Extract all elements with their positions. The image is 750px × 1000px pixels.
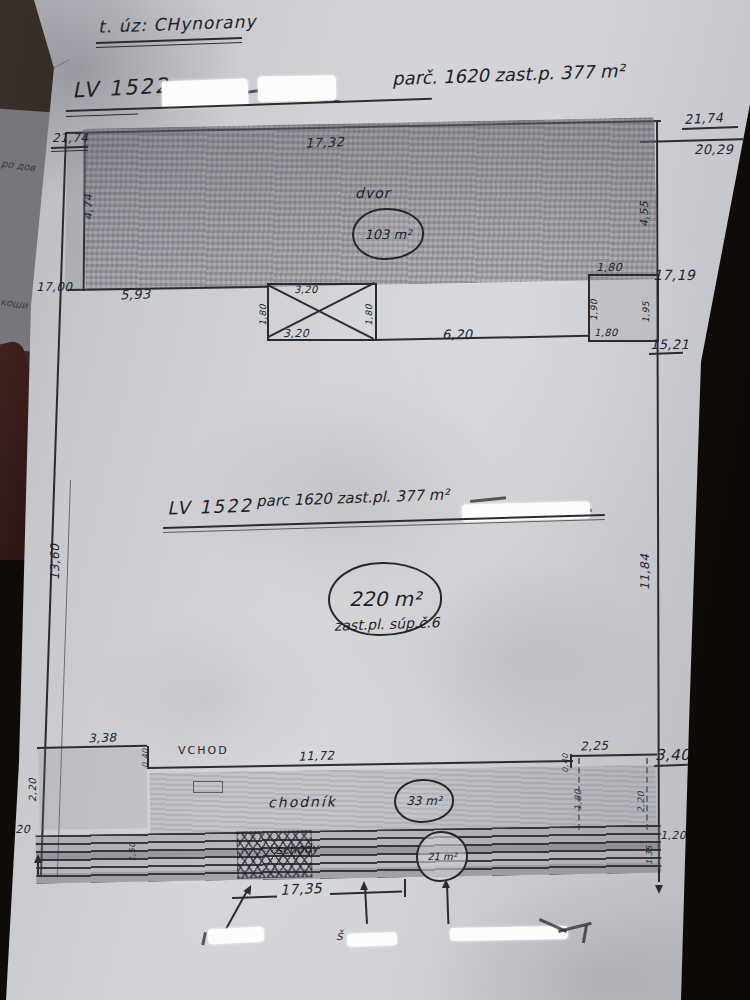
dvor-label: dvor	[355, 186, 391, 200]
dim-top-width: 17,32	[305, 135, 345, 149]
handwriting-trace	[201, 932, 206, 945]
dim-left-1700: 17,00	[36, 281, 72, 293]
dim-1735-tick	[232, 895, 277, 899]
dim-shed-right: 1,80	[365, 304, 374, 326]
dim-annex-top: 1,80	[596, 262, 622, 273]
title-lv-number: LV 1522	[72, 75, 171, 101]
note-arrow-head	[360, 881, 368, 890]
dim-left-220: 2,20	[28, 778, 38, 802]
territory-label: t. úz: CHynorany	[98, 13, 257, 36]
dim-left-1360: 13,60	[49, 544, 61, 580]
redaction-note	[208, 927, 265, 945]
chodnik-area-value: 33 m²	[406, 794, 442, 808]
building-caption: zast.pl. súp.č.6	[334, 615, 440, 633]
redaction-owner-name	[258, 75, 336, 101]
redaction-note	[450, 926, 568, 941]
dim-underline	[654, 764, 692, 767]
paper-crease	[0, 59, 69, 97]
dim-annex-right: 1,95	[642, 301, 651, 323]
dvor-area-value: 103 m²	[365, 227, 412, 242]
dim-left-total: 21,74	[52, 132, 88, 144]
dim-band-150: 1,50	[129, 842, 137, 861]
dim-dvor-left-depth: 4,74	[83, 194, 94, 220]
left-strip-shading	[38, 748, 147, 830]
redaction-note	[347, 932, 397, 947]
dim-seg-225: 2,25	[580, 740, 609, 753]
band-arrow-right	[658, 868, 660, 882]
dim-right-total: 21,74	[684, 111, 724, 126]
note-arrow-head	[442, 879, 450, 888]
title-underline	[66, 113, 138, 117]
dim-seg-593: 5,93	[120, 287, 151, 301]
schody-label: schody	[276, 842, 319, 856]
dim-shed-bottom: 3,20	[283, 328, 309, 339]
dvor-shading	[82, 117, 657, 290]
dim-underline	[649, 352, 683, 355]
dim-shed-top: 3,20	[294, 285, 318, 295]
mid-lv-number: LV 1522	[167, 497, 253, 518]
note-fragment-s: š	[336, 929, 343, 942]
dim-bottom-1735: 17,35	[280, 881, 323, 897]
dim-right-1521: 15,21	[650, 338, 689, 351]
band-arrow-right-head	[655, 885, 663, 894]
title-parcel-label: parč. 1620 zast.p. 377 m²	[392, 62, 625, 88]
dim-seg-1172: 11,72	[298, 749, 335, 762]
dim-right-120: 1,20	[660, 830, 686, 841]
building-area-value: 220 m²	[349, 587, 421, 611]
dim-right-340: 3,40	[655, 748, 690, 763]
dim-right-1719: 17,19	[653, 268, 695, 282]
photo-of-cadastral-sketch: po дов коши t. úz: CHynorany LV 1522 par…	[0, 0, 750, 1000]
dim-1735-end-tick	[404, 879, 406, 897]
dim-annex-left: 1,90	[590, 299, 599, 321]
dim-seg-338: 3,38	[88, 732, 117, 745]
dim-shed-left: 1,80	[259, 304, 268, 326]
dim-right-2029: 20,29	[694, 143, 733, 156]
dim-band-135: 1,35	[646, 845, 654, 864]
band-arrow-left-head	[34, 854, 42, 863]
seg-620-line	[373, 335, 589, 341]
dim-dvor-right-depth: 4,55	[639, 201, 650, 227]
dim-seg-620: 6,20	[442, 328, 473, 341]
note-arrow	[446, 884, 449, 924]
paper-sheet: t. úz: CHynorany LV 1522 parč. 1620 zast…	[0, 0, 750, 1000]
schody-area-value: 21 m²	[427, 851, 457, 862]
chodnik-label: chodník	[268, 794, 337, 809]
note-arrow	[225, 889, 249, 930]
vchod-label: VCHOD	[178, 745, 229, 756]
band-arrow-left	[37, 862, 39, 875]
handwriting-trace	[582, 925, 588, 943]
dim-right-1184: 11,84	[639, 554, 651, 590]
dim-annex-bottom: 1,80	[594, 328, 618, 338]
